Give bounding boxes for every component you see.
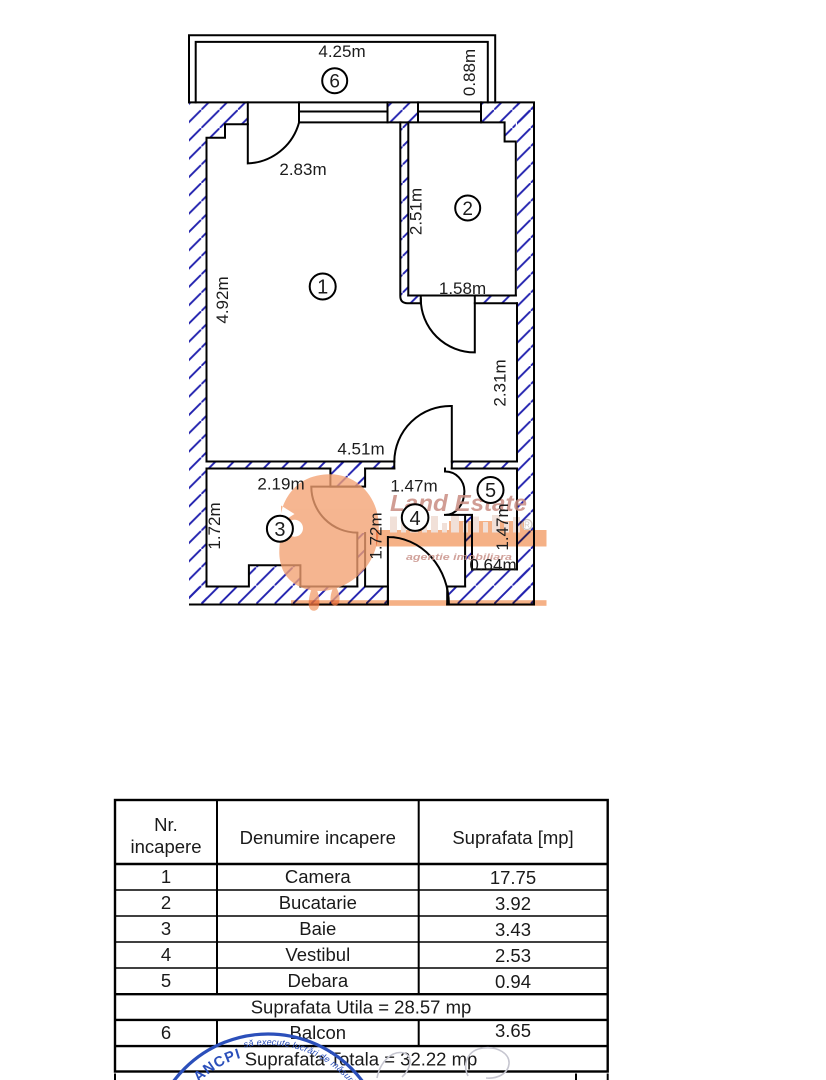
svg-text:1.47m: 1.47m bbox=[493, 503, 512, 550]
svg-text:Vestibul: Vestibul bbox=[285, 944, 350, 965]
svg-text:4.51m: 4.51m bbox=[337, 440, 384, 459]
svg-text:17.75: 17.75 bbox=[490, 867, 536, 888]
svg-text:Suprafata Utila = 28.57 mp: Suprafata Utila = 28.57 mp bbox=[251, 997, 472, 1018]
svg-text:Bucatarie: Bucatarie bbox=[279, 892, 357, 913]
svg-text:4.25m: 4.25m bbox=[318, 42, 365, 61]
svg-text:R: R bbox=[524, 521, 530, 530]
svg-text:0.94: 0.94 bbox=[495, 971, 531, 992]
svg-text:1: 1 bbox=[161, 866, 171, 887]
svg-text:3.43: 3.43 bbox=[495, 919, 531, 940]
svg-text:Balcon: Balcon bbox=[290, 1022, 347, 1043]
svg-text:5: 5 bbox=[161, 970, 171, 991]
svg-text:6: 6 bbox=[329, 72, 340, 93]
svg-text:Nr.: Nr. bbox=[154, 814, 178, 835]
svg-text:2.31m: 2.31m bbox=[490, 359, 509, 406]
svg-text:1.58m: 1.58m bbox=[439, 279, 486, 298]
svg-text:Debara: Debara bbox=[287, 970, 348, 991]
svg-text:3: 3 bbox=[161, 918, 171, 939]
svg-text:4: 4 bbox=[410, 508, 421, 530]
svg-text:4.92m: 4.92m bbox=[213, 276, 232, 323]
svg-text:2.53: 2.53 bbox=[495, 945, 531, 966]
svg-text:1.47m: 1.47m bbox=[390, 477, 437, 496]
svg-text:3.92: 3.92 bbox=[495, 893, 531, 914]
svg-text:Suprafata [mp]: Suprafata [mp] bbox=[452, 827, 573, 848]
svg-text:Denumire incapere: Denumire incapere bbox=[240, 827, 396, 848]
svg-text:2.83m: 2.83m bbox=[279, 160, 326, 179]
svg-text:Suprafata Totala = 32.22 mp: Suprafata Totala = 32.22 mp bbox=[245, 1049, 478, 1070]
svg-text:4: 4 bbox=[161, 944, 171, 965]
svg-text:incapere: incapere bbox=[131, 836, 202, 857]
svg-text:2.51m: 2.51m bbox=[407, 188, 426, 235]
svg-text:1.72m: 1.72m bbox=[367, 512, 386, 559]
svg-text:3.65: 3.65 bbox=[495, 1020, 531, 1041]
svg-text:1: 1 bbox=[317, 277, 328, 299]
svg-text:0.88m: 0.88m bbox=[460, 49, 479, 96]
svg-text:6: 6 bbox=[161, 1022, 171, 1043]
svg-text:Baie: Baie bbox=[299, 918, 336, 939]
svg-text:1.72m: 1.72m bbox=[205, 502, 224, 549]
svg-text:3: 3 bbox=[274, 519, 285, 541]
svg-text:2.19m: 2.19m bbox=[257, 475, 304, 494]
svg-text:2: 2 bbox=[462, 199, 473, 220]
svg-text:2: 2 bbox=[161, 892, 171, 913]
svg-text:5: 5 bbox=[485, 480, 496, 502]
svg-text:0.64m: 0.64m bbox=[469, 556, 516, 575]
svg-text:Camera: Camera bbox=[285, 866, 352, 887]
